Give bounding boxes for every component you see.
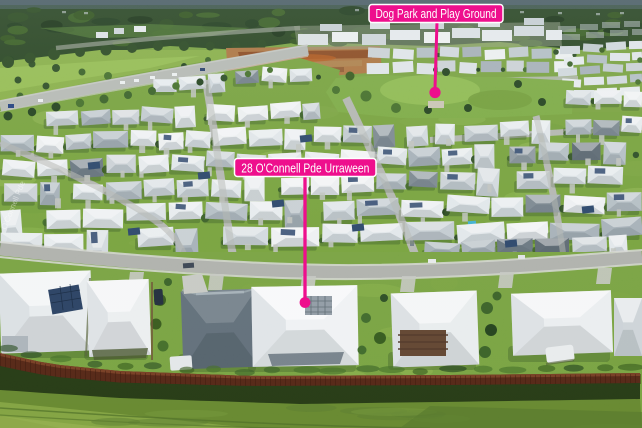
svg-text:28 O'Connell Pde Urraween: 28 O'Connell Pde Urraween	[241, 160, 369, 175]
svg-text:Dog Park and Play Ground: Dog Park and Play Ground	[376, 6, 497, 21]
